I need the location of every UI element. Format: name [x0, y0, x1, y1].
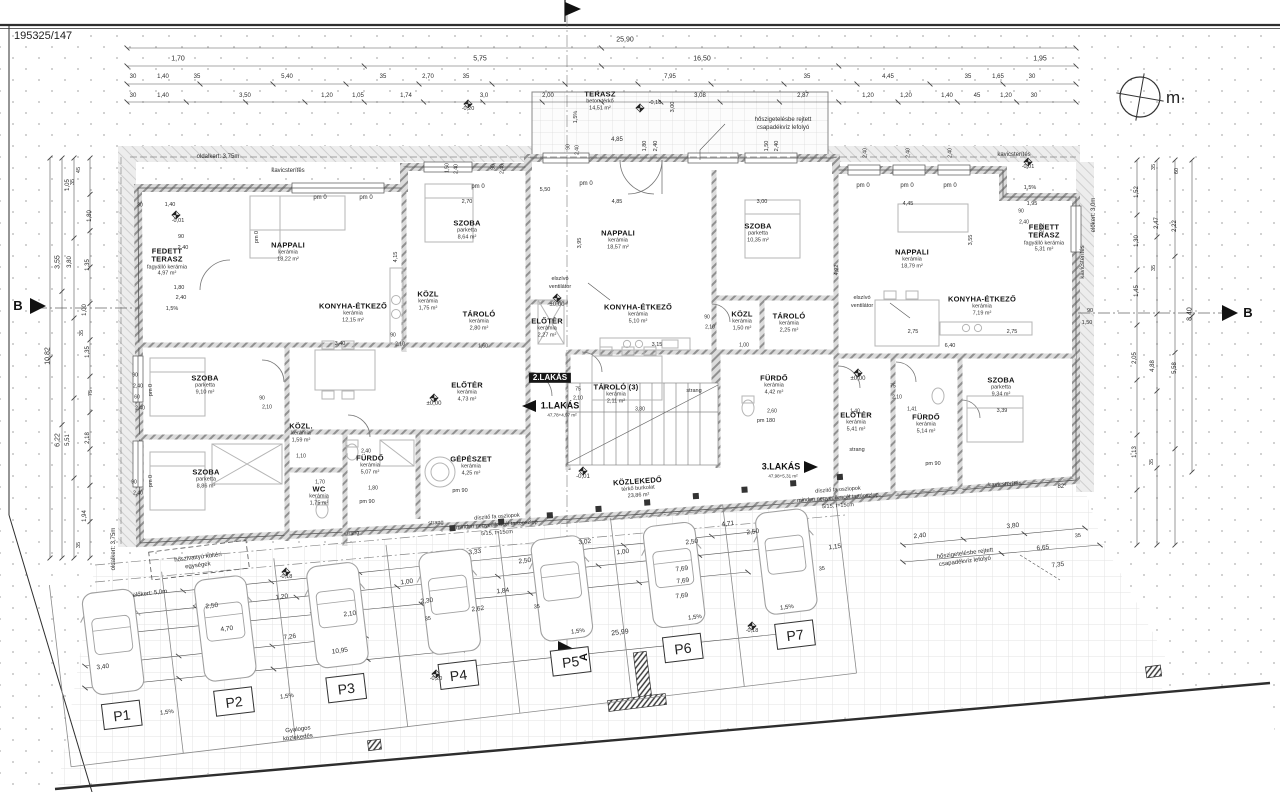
parking-space-label: P6 [673, 639, 692, 657]
north-symbol-icon [1112, 69, 1168, 125]
section-b-left-icon [30, 298, 46, 314]
parking-space-label: P4 [449, 666, 468, 684]
parking-space-label: P1 [112, 706, 131, 724]
floor-plan-canvas: P1P2P3P4P5P6P7 195325/147 m· 25,901,705,… [0, 0, 1280, 792]
parking-space-label: P5 [561, 653, 580, 671]
plan-drawing: P1P2P3P4P5P6P7 [0, 0, 1280, 792]
section-b-right-icon [1222, 305, 1238, 321]
stairs [568, 383, 718, 465]
parking-space-label: P7 [786, 626, 805, 644]
parking-space-label: P2 [225, 693, 244, 711]
parking-space-label: P3 [337, 680, 356, 698]
section-a-top-icon [565, 2, 581, 16]
